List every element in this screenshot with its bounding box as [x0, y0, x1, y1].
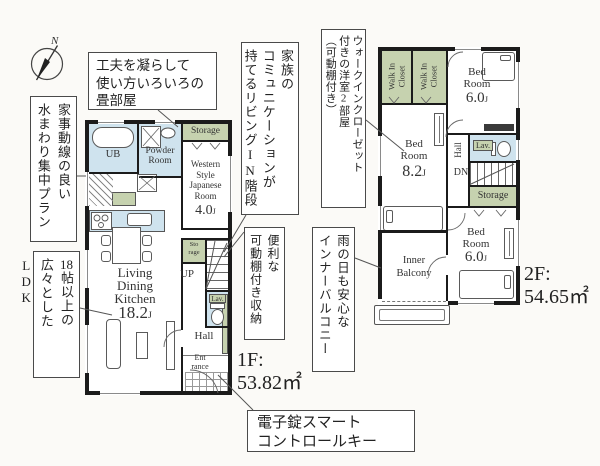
room-label-storage-stairs: Sto rage — [184, 241, 204, 256]
wall — [448, 206, 516, 208]
room-size-bed1: 6.0J — [452, 90, 502, 107]
under-floor-storage — [112, 192, 136, 206]
balcony-open-edge — [382, 301, 446, 302]
compass-icon: N — [32, 35, 63, 80]
wall — [470, 161, 516, 163]
callout-mizumawari: 家事動線の良い 水まわり集中プラン — [30, 96, 77, 242]
window — [378, 206, 382, 230]
wall — [205, 292, 207, 326]
room-size-ldk: 18.2J — [98, 303, 172, 322]
stairs-down — [470, 163, 516, 185]
room-label-bed3: Bed Room — [450, 226, 502, 250]
coffee-table — [136, 332, 148, 359]
entrance-floor — [185, 372, 228, 391]
chair — [101, 235, 111, 246]
floor2-area-label: 2F: 54.65㎡ — [524, 263, 600, 309]
kitchen-sink — [127, 213, 152, 226]
room-label-powder: Powder Room — [139, 146, 181, 166]
tv-board — [166, 321, 175, 370]
wall — [183, 262, 207, 264]
wall — [205, 240, 207, 290]
refrigerator-space — [89, 174, 113, 206]
stairs-up — [207, 240, 228, 290]
window — [98, 120, 124, 124]
wall — [470, 185, 516, 187]
callout-movable-shelf: 便利な 可動棚付き収納 — [244, 227, 285, 340]
chair — [142, 251, 152, 262]
window — [455, 47, 481, 51]
room-label-hall-1f: Hall — [184, 330, 224, 342]
room-size-bed2: 8.2J — [388, 163, 440, 181]
kitchen-stove — [91, 212, 112, 230]
window — [85, 325, 89, 373]
wall — [139, 176, 183, 178]
room-label-ub: UB — [95, 149, 131, 161]
room-label-wic-1: Walk In Closet — [388, 51, 407, 103]
wall — [181, 347, 183, 391]
callout-walk-in-closet: ウォークインクローゼット 付きの洋室2部屋 （可動棚付き） — [321, 29, 366, 208]
callout-inner-balcony: 雨の日も安心な インナーバルコニー — [312, 227, 355, 372]
callout-smart-key: 電子錠スマート コントロールキー — [247, 410, 415, 452]
lavatory-tag-2f: Lav. — [473, 140, 493, 151]
window — [516, 140, 520, 160]
wall — [382, 230, 446, 233]
balcony-rail-inner — [379, 309, 445, 321]
toilet-bowl — [497, 141, 511, 157]
wall — [183, 228, 228, 230]
room-label-entrance: Ent rance — [186, 354, 214, 371]
dining-table — [112, 227, 141, 264]
window — [100, 391, 140, 395]
window — [85, 172, 89, 206]
room-label-bed2: Bed Room — [388, 138, 440, 162]
wall — [205, 290, 228, 292]
washing-machine — [141, 126, 161, 148]
room-size-wsjr: 4.0J — [183, 203, 228, 219]
room-label-ldk: Living Dining Kitchen — [98, 266, 172, 305]
pillow — [386, 210, 393, 223]
callout-wide-ldk: 18帖以上の 広々としたLDK — [33, 251, 80, 378]
wall — [411, 51, 413, 103]
wall — [205, 326, 228, 328]
wall — [183, 140, 228, 142]
wall — [382, 103, 446, 105]
svg-text:N: N — [50, 35, 59, 47]
bathtub — [92, 127, 134, 148]
window — [516, 220, 520, 266]
window — [458, 301, 494, 305]
lavatory-tag-1f: Lav. — [209, 294, 226, 303]
wall — [181, 238, 183, 330]
wall — [446, 233, 448, 255]
window — [228, 156, 232, 212]
room-label-balcony: Inner Balcony — [390, 254, 438, 280]
room-label-hall-2f: Hall — [453, 132, 463, 168]
room-label-wsjr: Western Style Japanese Room — [183, 159, 228, 201]
room-label-wic-2: Walk In Closet — [420, 51, 439, 103]
room-label-storage-2f: Storage — [470, 190, 516, 201]
window — [378, 136, 382, 176]
window — [516, 62, 520, 108]
room-size-bed3: 6.0J — [450, 249, 502, 266]
pillow — [504, 275, 511, 289]
chair — [142, 235, 152, 246]
tv-board — [484, 124, 514, 131]
room-label-bed1: Bed Room — [452, 66, 502, 90]
callout-living-in-stairs: 家族の コミュニケーションが 持てるリビングIN階段 — [241, 42, 299, 215]
floorplan-canvas: UB Powder Room Storage Western Style Jap… — [0, 0, 600, 466]
wall — [446, 275, 448, 301]
window — [85, 250, 89, 288]
toilet-bowl — [211, 309, 224, 325]
wall — [89, 172, 139, 174]
sofa — [106, 319, 121, 369]
stairs-up-label: UP — [175, 268, 199, 280]
window — [155, 120, 175, 124]
pillow — [500, 55, 511, 61]
callout-tatami-room: 工夫を凝らして 使い方いろいろの 畳部屋 — [88, 52, 217, 110]
room-label-storage-1f: Storage — [183, 126, 228, 137]
stairs-down-label: DN — [450, 167, 472, 178]
balcony-open-edge-cover — [378, 299, 448, 305]
chair — [101, 251, 111, 262]
cabinet — [504, 228, 514, 259]
